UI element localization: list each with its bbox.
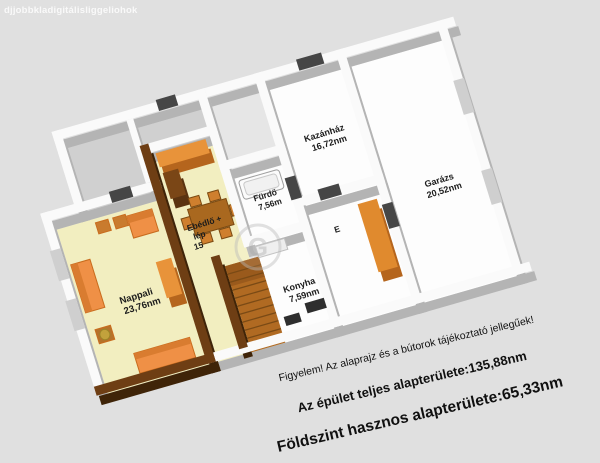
center-watermark-letter: G — [248, 232, 268, 262]
center-watermark: G — [236, 225, 280, 269]
floorplan-screenshot: Nappali 23,76nm Ebédlő + lép 15 Fürdő 7,… — [0, 0, 600, 463]
floorplan-render: Nappali 23,76nm Ebédlő + lép 15 Fürdő 7,… — [0, 0, 600, 463]
top-left-watermark: djjobbkladigitálisliggeliohok — [4, 5, 138, 16]
